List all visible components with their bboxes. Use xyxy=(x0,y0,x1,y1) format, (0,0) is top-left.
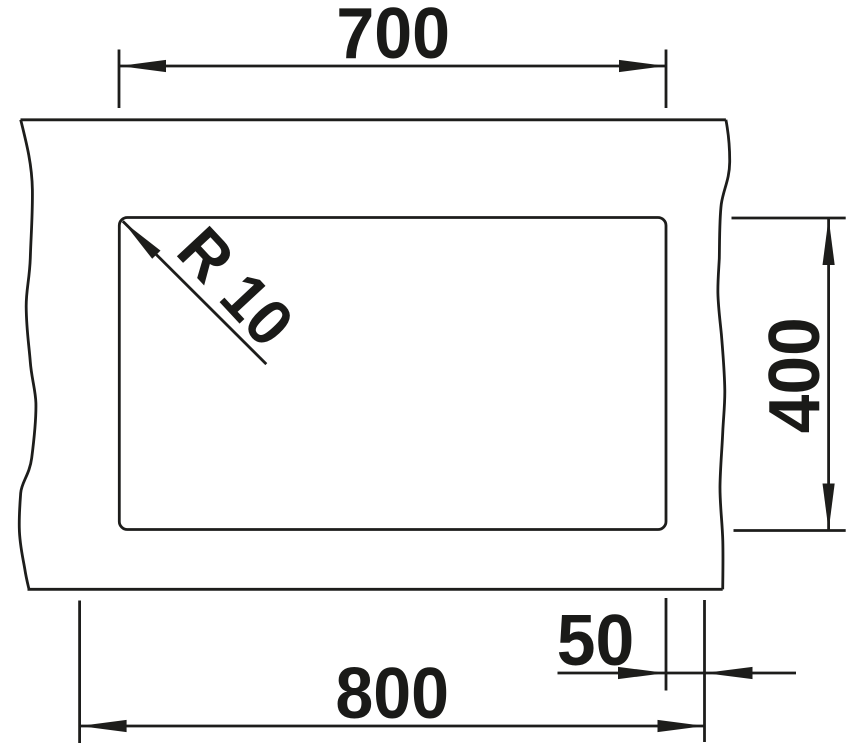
svg-text:800: 800 xyxy=(335,654,449,734)
svg-text:400: 400 xyxy=(755,317,835,433)
svg-text:700: 700 xyxy=(336,0,450,74)
svg-text:R 10: R 10 xyxy=(164,213,308,360)
svg-text:50: 50 xyxy=(557,601,635,681)
